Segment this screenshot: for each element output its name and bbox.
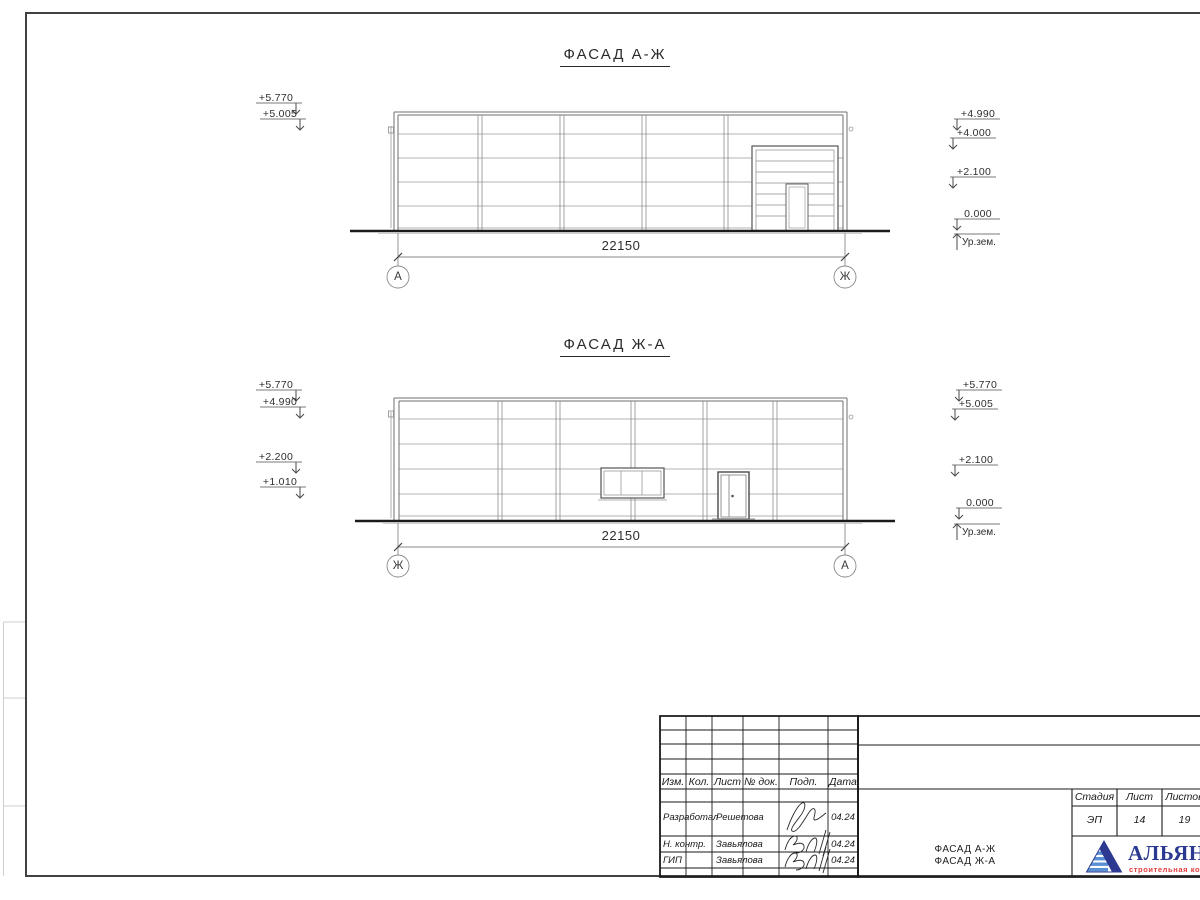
sheets-value: 19 (1162, 814, 1200, 826)
gate (752, 146, 838, 231)
axis-label-left: Ж (387, 560, 409, 572)
company-subtitle: строительная компания (1129, 865, 1200, 874)
titleblock-role: Разработал (663, 812, 718, 823)
titleblock-col-kol: Кол. (685, 776, 713, 788)
elevation-mark-label: +4.990 (955, 108, 1001, 120)
titleblock-col-doc: № док. (742, 776, 780, 788)
dimension-label: 22150 (558, 528, 684, 543)
facade1-drawing (250, 85, 1010, 300)
titleblock-date: 04.24 (827, 855, 859, 866)
company-name: АЛЬЯНС (1128, 841, 1200, 866)
doc-title-line2: ФАСАД Ж-А (858, 856, 1072, 867)
elevation-mark-label: +5.770 (957, 379, 1003, 391)
titleblock-date: 04.24 (827, 812, 859, 823)
doc-title-line1: ФАСАД А-Ж (858, 844, 1072, 855)
elevation-mark-label: +2.200 (253, 451, 299, 463)
margin-table (0, 615, 30, 890)
elevation-mark-label: +5.770 (253, 92, 299, 104)
signature-developer (787, 803, 826, 832)
titleblock-col-list: Лист (711, 776, 744, 788)
elevation-mark-label: +5.005 (257, 108, 303, 120)
dimension-label: 22150 (558, 238, 684, 253)
titleblock-name: Завьялова (716, 839, 763, 850)
elevation-mark-label: +2.100 (953, 454, 999, 466)
drawing-sheet: { "drawing": { "facade1": { "title": "ФА… (0, 0, 1200, 900)
titleblock-role: Н. контр. (663, 839, 706, 850)
facade1-title: ФАСАД А-Ж (500, 46, 730, 67)
titleblock-col-izm: Изм. (659, 776, 687, 788)
elevation-mark-label: 0.000 (955, 208, 1001, 220)
titleblock-role: ГИП (663, 855, 682, 866)
window (598, 468, 667, 500)
titleblock-name: Завьялова (716, 855, 763, 866)
sheet-label: Лист (1117, 791, 1162, 803)
elevation-mark-label: +4.000 (951, 127, 997, 139)
signature-chief-engineer (785, 847, 830, 873)
titleblock-name: Решетова (716, 812, 764, 823)
facade2-title: ФАСАД Ж-А (500, 336, 730, 357)
axis-label-right: Ж (834, 271, 856, 283)
axis-label-left: А (387, 271, 409, 283)
ground-level-label: Ур.зем. (962, 237, 996, 248)
sheets-label: Листов (1162, 791, 1200, 803)
sheet-value: 14 (1117, 814, 1162, 826)
titleblock-col-data: Дата (827, 776, 859, 788)
elevation-mark-label: +5.770 (253, 379, 299, 391)
elevation-mark-label: +1.010 (257, 476, 303, 488)
stage-label: Стадия (1072, 791, 1117, 803)
titleblock-date: 04.24 (827, 839, 859, 850)
elevation-mark-label: +2.100 (951, 166, 997, 178)
entrance-door (712, 472, 755, 519)
elevation-mark-label: 0.000 (957, 497, 1003, 509)
elevation-mark-label: +4.990 (257, 396, 303, 408)
axis-label-right: А (834, 560, 856, 572)
facade2-drawing (250, 370, 1010, 600)
elevation-mark-label: +5.005 (953, 398, 999, 410)
ground-level-label: Ур.зем. (962, 527, 996, 538)
stage-value: ЭП (1072, 814, 1117, 826)
titleblock-col-podp: Подп. (778, 776, 829, 788)
